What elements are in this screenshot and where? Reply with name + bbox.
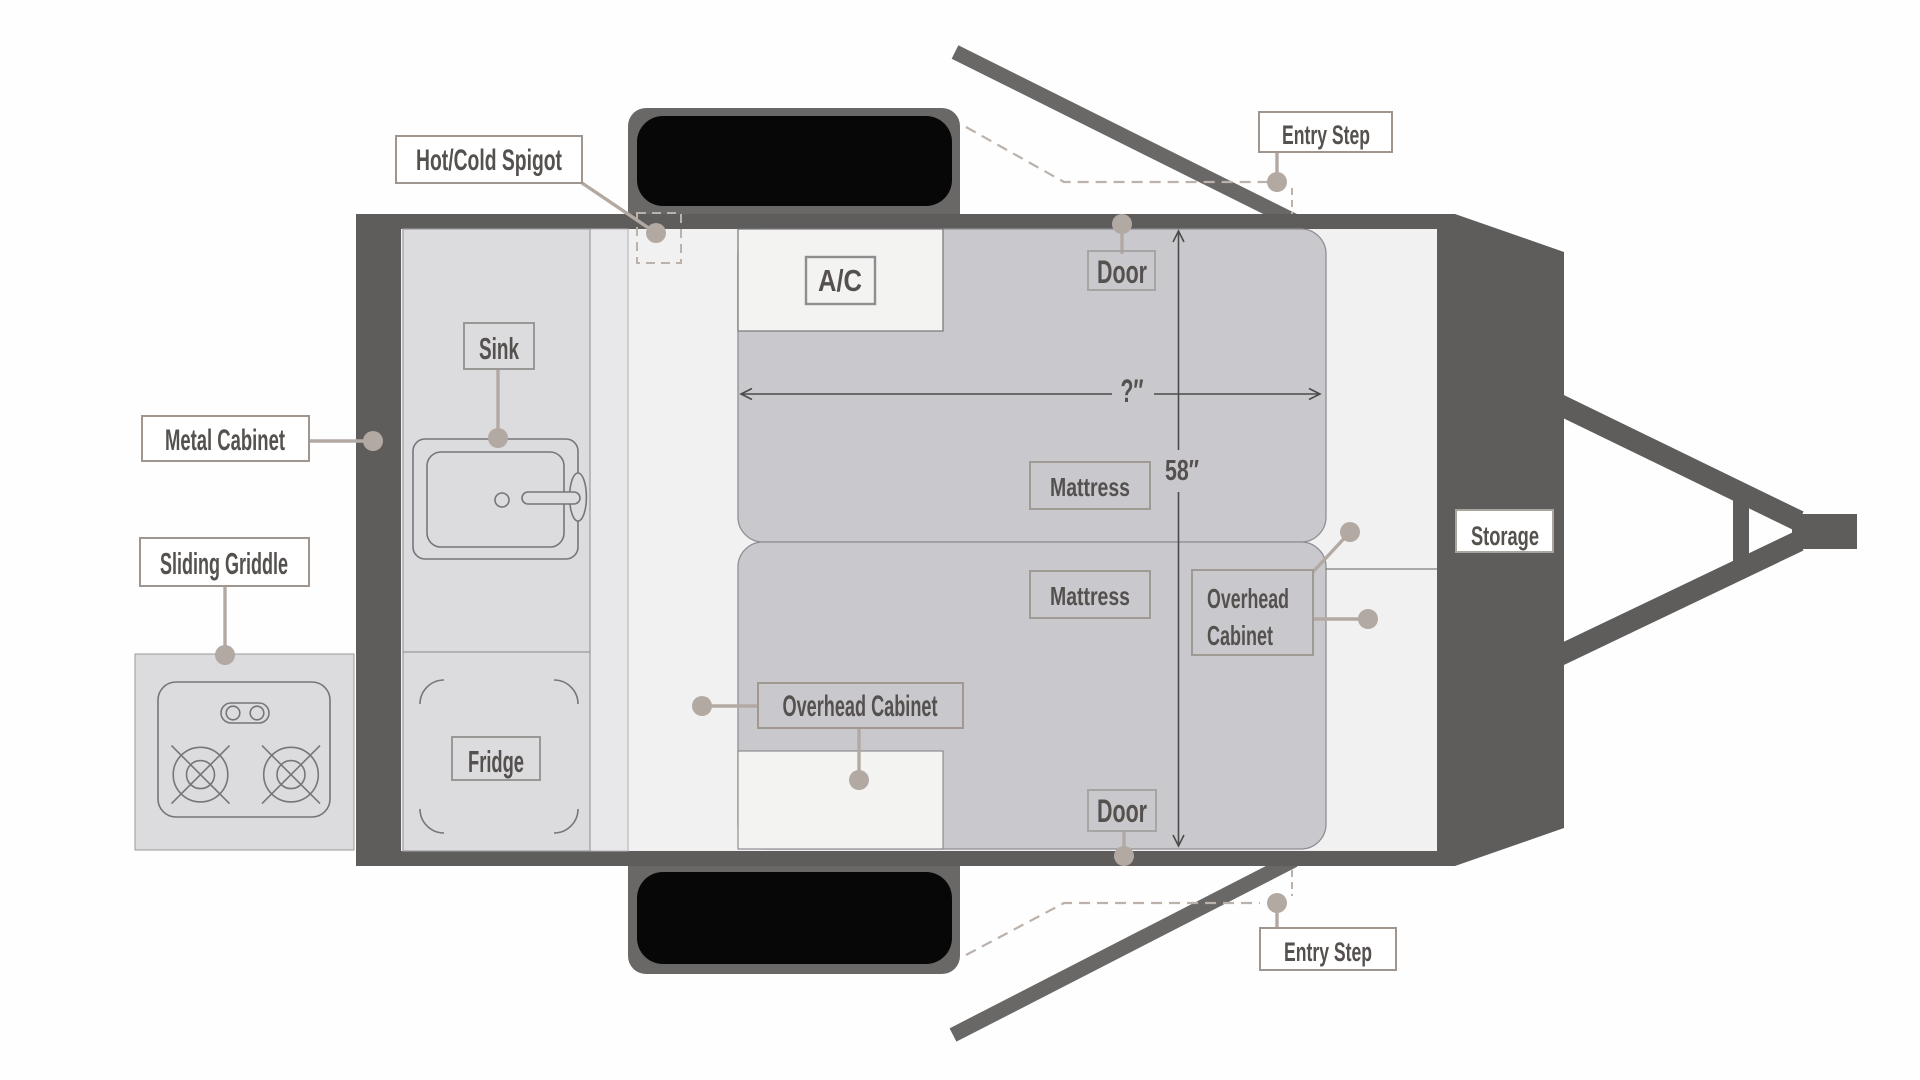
svg-text:Door: Door [1097, 793, 1147, 829]
svg-text:58″: 58″ [1165, 455, 1199, 487]
svg-text:Storage: Storage [1471, 521, 1539, 551]
svg-text:Mattress: Mattress [1050, 581, 1130, 611]
svg-text:Entry Step: Entry Step [1282, 120, 1370, 150]
svg-text:Sliding Griddle: Sliding Griddle [160, 546, 288, 581]
svg-text:?″: ?″ [1121, 373, 1144, 409]
svg-text:A/C: A/C [818, 263, 862, 298]
svg-text:Entry Step: Entry Step [1284, 937, 1372, 967]
svg-text:Door: Door [1097, 254, 1147, 290]
svg-text:Hot/Cold Spigot: Hot/Cold Spigot [416, 144, 562, 177]
svg-text:Overhead: Overhead [1207, 583, 1289, 614]
svg-text:Overhead Cabinet: Overhead Cabinet [783, 690, 938, 723]
svg-text:Sink: Sink [479, 331, 519, 366]
svg-text:Metal Cabinet: Metal Cabinet [165, 424, 285, 457]
svg-text:Cabinet: Cabinet [1207, 620, 1273, 651]
svg-text:Mattress: Mattress [1050, 472, 1130, 502]
svg-text:Fridge: Fridge [468, 744, 524, 779]
